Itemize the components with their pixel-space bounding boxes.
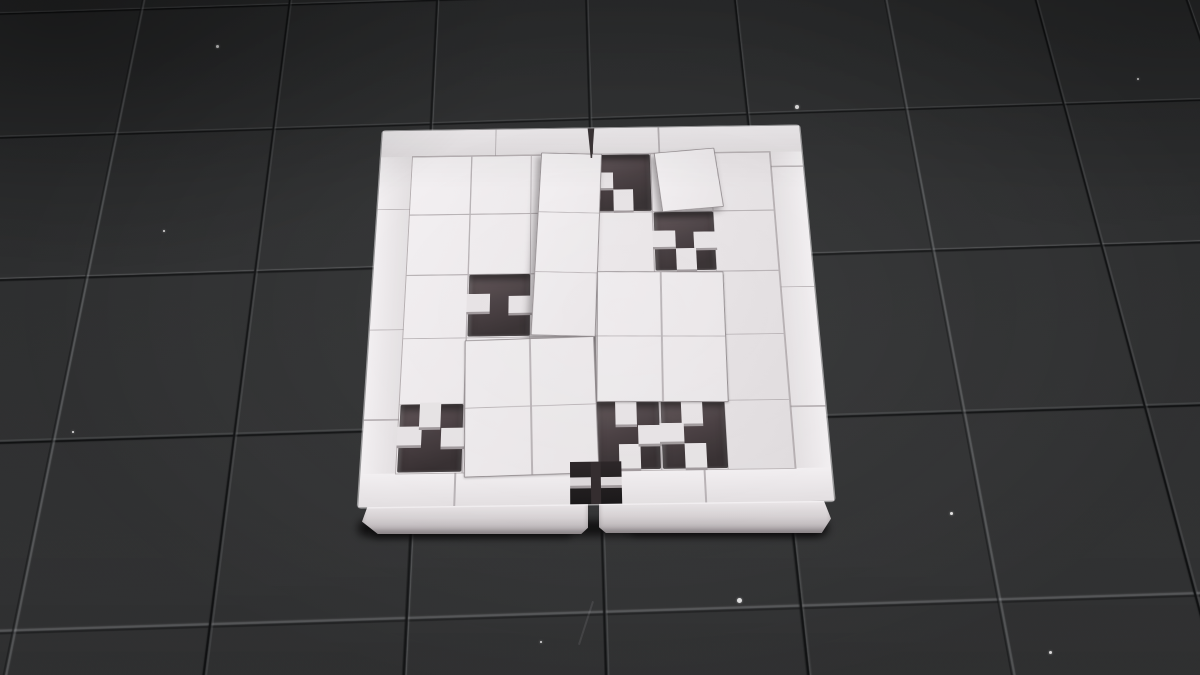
- empty-socket: [661, 401, 728, 469]
- connector-tab: [419, 403, 442, 430]
- bottom-join-notch: [570, 461, 622, 504]
- connector-tab: [676, 248, 698, 272]
- empty-socket: [596, 402, 662, 470]
- connector-tab: [637, 425, 662, 447]
- connector-tab: [660, 422, 685, 444]
- piece-inner-seam: [538, 211, 599, 213]
- empty-socket: [468, 274, 530, 336]
- connector-tab: [615, 400, 637, 427]
- empty-socket: [397, 404, 464, 472]
- connector-post-gap: [591, 462, 602, 504]
- tall-i-piece: [530, 153, 602, 337]
- connector-tab: [613, 189, 634, 212]
- big-square-right: [596, 271, 728, 402]
- tilted-square: [654, 148, 725, 212]
- connector-tab: [440, 427, 465, 449]
- connector-tab: [396, 426, 421, 448]
- photo-stage: [0, 0, 1200, 675]
- connector-tab: [693, 231, 717, 250]
- connector-tab: [508, 295, 531, 315]
- connector-tab: [653, 230, 676, 249]
- piece-inner-seam: [660, 272, 663, 401]
- empty-socket: [654, 211, 716, 271]
- connector-tab: [467, 294, 491, 314]
- puzzle-tray: [352, 41, 834, 508]
- connector-tab: [685, 443, 708, 471]
- piece-inner-seam: [535, 271, 597, 273]
- puzzle-tray-top-face: [358, 126, 834, 508]
- big-square-left: [464, 336, 599, 478]
- connector-tab: [619, 444, 642, 472]
- piece-inner-seam: [530, 339, 533, 474]
